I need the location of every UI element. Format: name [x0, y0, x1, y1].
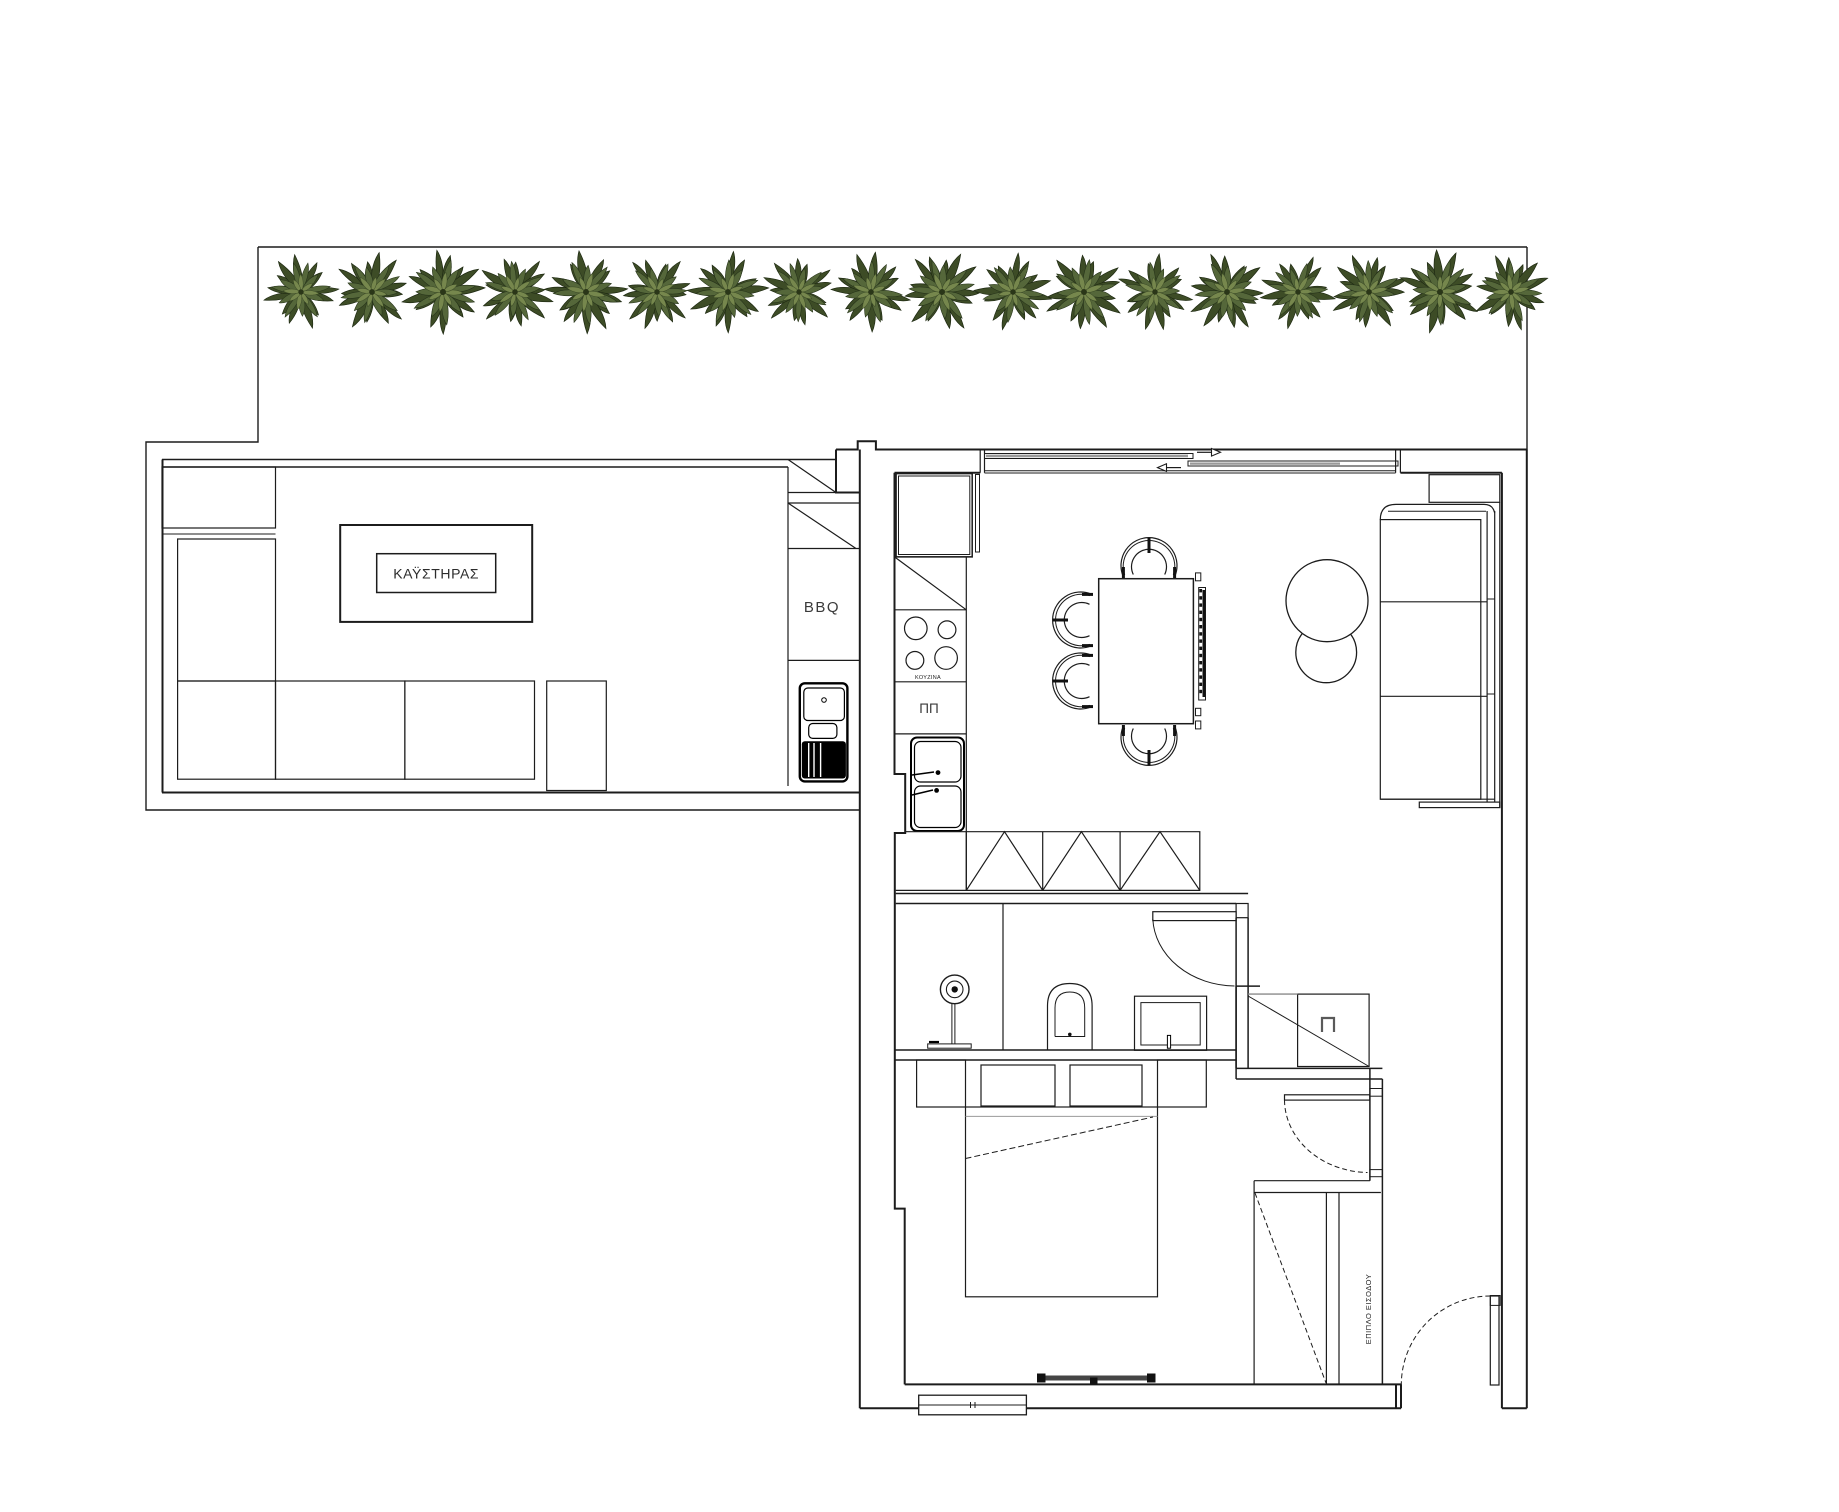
svg-text:BBQ: BBQ — [804, 599, 840, 616]
svg-text:ΕΠΙΠΛΟ ΕΙΣΟΔΟΥ: ΕΠΙΠΛΟ ΕΙΣΟΔΟΥ — [1364, 1274, 1373, 1345]
svg-text:ΠΠ: ΠΠ — [919, 701, 939, 716]
svg-text:ΚΟΥΖΙΝΑ: ΚΟΥΖΙΝΑ — [915, 675, 941, 681]
svg-text:ΚΑΫΣΤΗΡΑΣ: ΚΑΫΣΤΗΡΑΣ — [393, 566, 479, 582]
